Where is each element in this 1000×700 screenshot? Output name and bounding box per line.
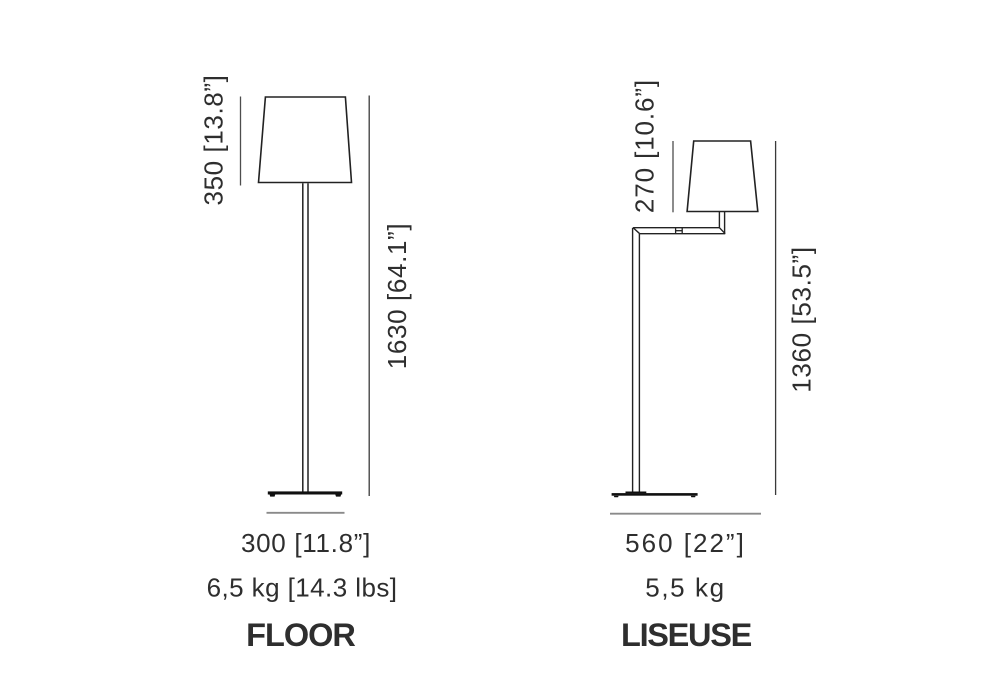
svg-text:1630 [64.1”]: 1630 [64.1”] [382,223,412,369]
svg-text:300 [11.8”]: 300 [11.8”] [241,528,371,558]
svg-text:6,5 kg [14.3 lbs]: 6,5 kg [14.3 lbs] [207,573,398,603]
svg-text:350 [13.8”]: 350 [13.8”] [198,75,228,206]
svg-text:560 [22”]: 560 [22”] [625,528,746,558]
svg-text:1360 [53.5”]: 1360 [53.5”] [786,246,816,392]
svg-text:270 [10.6”]: 270 [10.6”] [630,79,660,213]
svg-text:FLOOR: FLOOR [246,617,355,653]
svg-text:5,5 kg: 5,5 kg [645,573,725,603]
svg-text:LISEUSE: LISEUSE [621,617,752,653]
